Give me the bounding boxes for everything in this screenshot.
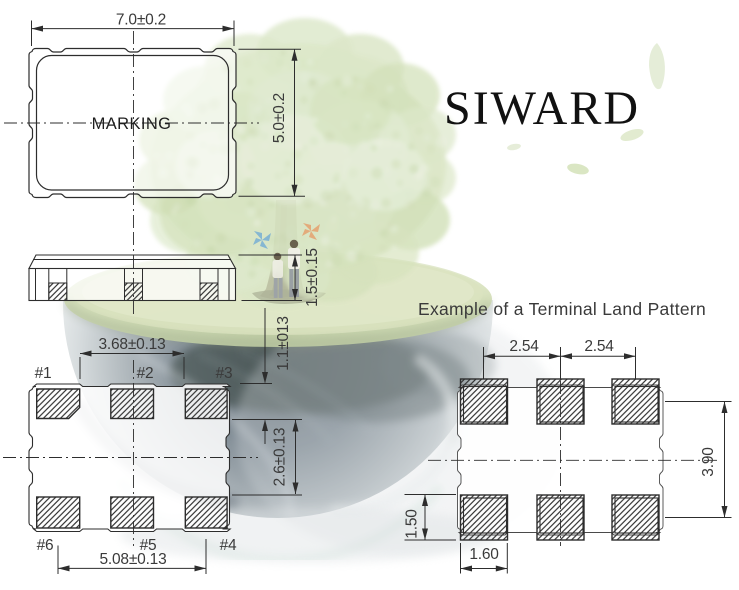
svg-text:7.0±0.2: 7.0±0.2 [116,12,166,29]
svg-text:#2: #2 [137,365,154,382]
svg-text:2.6±0.13: 2.6±0.13 [272,428,289,487]
svg-text:1.1±013: 1.1±013 [275,316,292,371]
svg-text:1.5±0.15: 1.5±0.15 [304,248,321,307]
svg-text:3.90: 3.90 [700,447,717,477]
svg-text:2.54: 2.54 [584,338,614,355]
svg-text:#1: #1 [35,365,52,382]
svg-text:Example of a Terminal Land Pat: Example of a Terminal Land Pattern [418,299,706,319]
svg-text:MARKING: MARKING [92,115,172,133]
svg-text:5.08±0.13: 5.08±0.13 [99,551,166,568]
svg-text:SIWARD: SIWARD [444,82,640,135]
svg-text:2.54: 2.54 [509,338,539,355]
svg-text:#6: #6 [37,537,54,554]
svg-text:#4: #4 [220,537,237,554]
svg-text:1.60: 1.60 [469,546,499,563]
svg-text:#3: #3 [216,365,233,382]
svg-text:1.50: 1.50 [404,509,421,539]
svg-text:3.68±0.13: 3.68±0.13 [98,336,165,353]
svg-text:5.0±0.2: 5.0±0.2 [271,93,288,143]
